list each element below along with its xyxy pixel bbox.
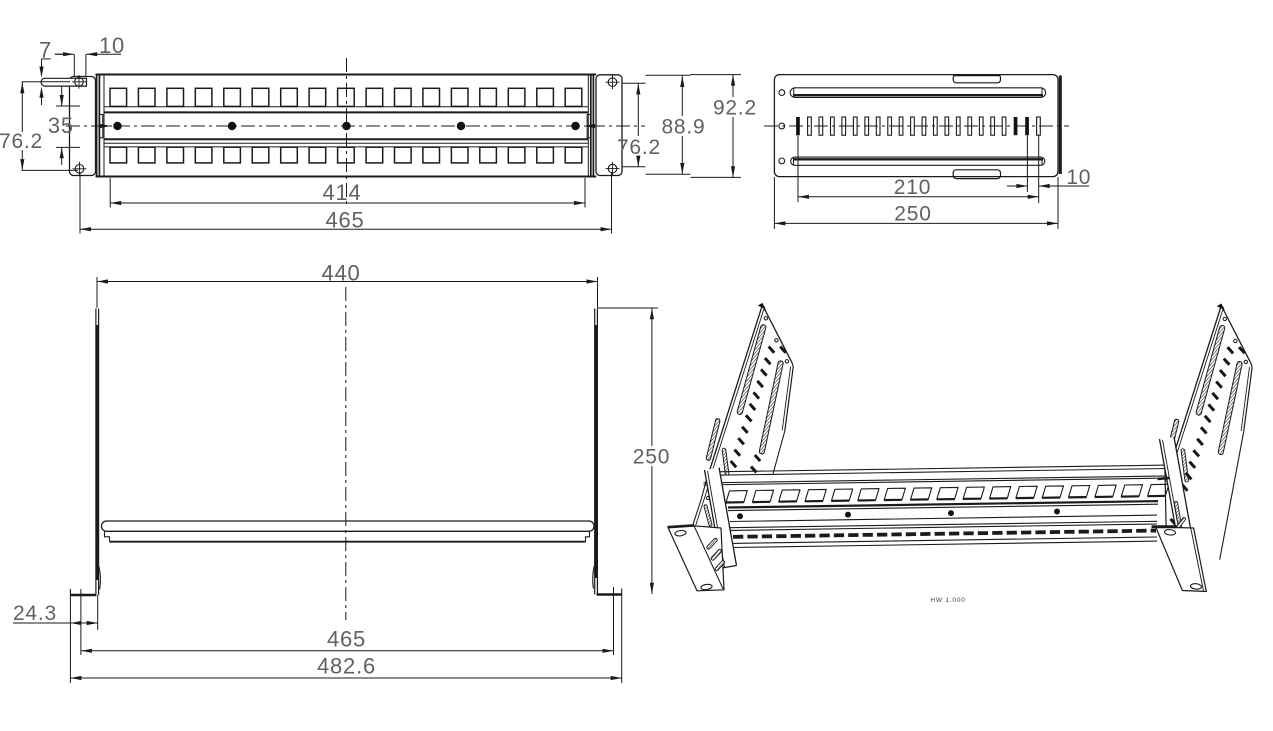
svg-text:414: 414 (322, 180, 361, 205)
svg-text:465: 465 (327, 627, 366, 652)
svg-text:210: 210 (894, 176, 931, 199)
svg-text:HW 1.000: HW 1.000 (930, 597, 965, 604)
svg-text:35: 35 (48, 113, 74, 138)
svg-text:88.9: 88.9 (661, 116, 705, 139)
svg-text:76.2: 76.2 (0, 130, 43, 153)
svg-text:76.2: 76.2 (617, 136, 661, 159)
svg-text:482.6: 482.6 (317, 654, 376, 679)
svg-text:24.3: 24.3 (13, 602, 57, 625)
svg-text:250: 250 (633, 446, 670, 469)
svg-text:250: 250 (894, 203, 931, 226)
svg-text:92.2: 92.2 (713, 96, 757, 119)
